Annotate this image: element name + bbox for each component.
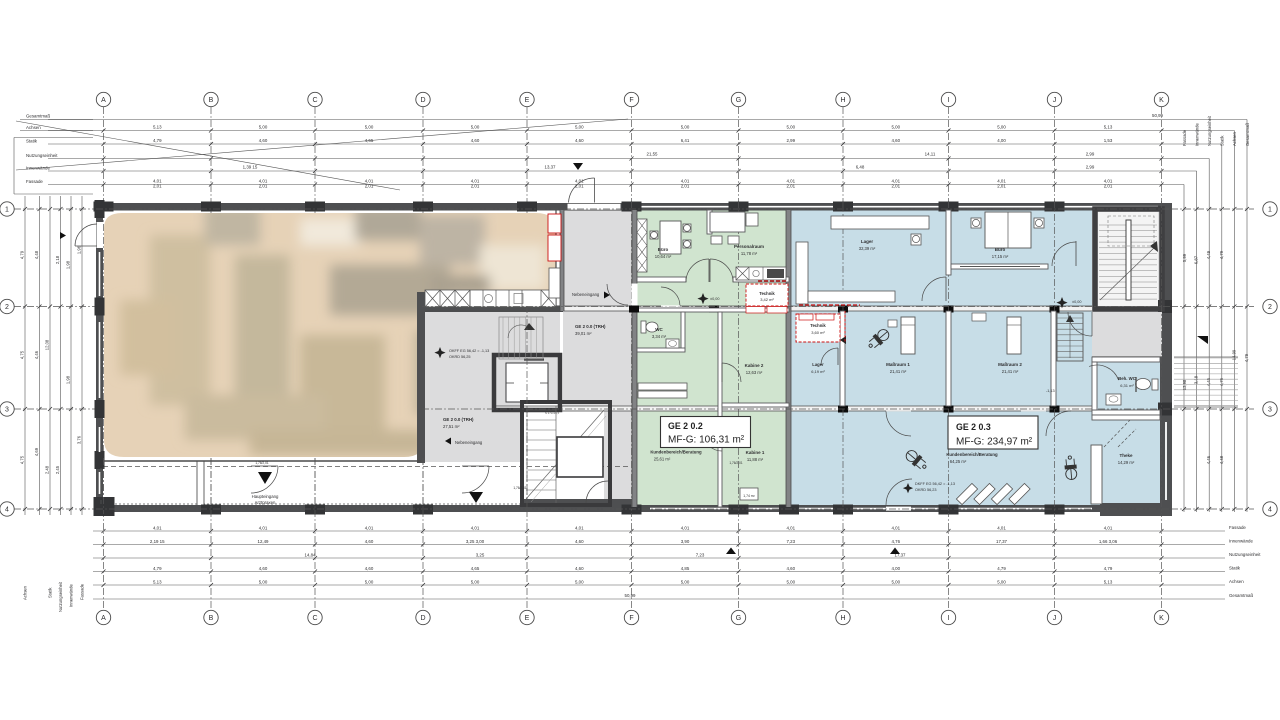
svg-text:2,01: 2,01 [575,184,584,189]
svg-text:4,79: 4,79 [1104,566,1113,571]
svg-text:5,00: 5,00 [997,580,1006,585]
svg-text:Büro: Büro [658,247,669,252]
svg-text:13,37: 13,37 [545,165,557,170]
svg-text:4,48: 4,48 [1219,455,1224,464]
svg-text:4,75: 4,75 [20,350,25,359]
svg-text:4,60: 4,60 [259,138,268,143]
svg-text:1: 1 [5,206,9,213]
svg-text:21,41 m²: 21,41 m² [890,369,907,374]
svg-text:4,85: 4,85 [681,566,690,571]
svg-text:4,75: 4,75 [20,455,25,464]
svg-text:6,41: 6,41 [681,138,690,143]
svg-text:6,48: 6,48 [856,165,865,170]
svg-text:7,23: 7,23 [696,553,705,558]
svg-text:5,00: 5,00 [786,580,795,585]
svg-text:A: A [101,97,106,104]
svg-text:4,79: 4,79 [20,250,25,259]
svg-text:E: E [525,615,530,622]
svg-text:Lager: Lager [861,239,874,244]
svg-text:4,79: 4,79 [1219,250,1224,259]
svg-text:3,34 m²: 3,34 m² [652,334,667,339]
svg-text:J: J [1053,615,1057,622]
svg-text:MF-G: 106,31 m²: MF-G: 106,31 m² [668,435,745,446]
svg-text:2,01: 2,01 [1104,184,1113,189]
svg-text:H: H [840,97,845,104]
svg-text:2,99: 2,99 [1086,165,1095,170]
svg-text:4,01: 4,01 [365,526,374,531]
svg-text:6,31 m²: 6,31 m² [1120,383,1134,388]
svg-text:4,60: 4,60 [259,566,268,571]
svg-text:Nebeneingang: Nebeneingang [572,292,600,297]
svg-text:11,88 m²: 11,88 m² [747,457,764,462]
svg-text:4,60: 4,60 [575,138,584,143]
svg-text:F: F [629,615,633,622]
svg-text:2,01: 2,01 [259,184,268,189]
svg-text:4,49: 4,49 [1206,250,1211,259]
svg-text:4,60: 4,60 [786,566,795,571]
svg-text:I: I [948,615,950,622]
svg-text:4,65: 4,65 [365,138,374,143]
svg-text:4,46: 4,46 [1206,455,1211,464]
svg-text:1,96: 1,96 [77,245,82,254]
svg-text:2,18: 2,18 [55,255,60,264]
svg-text:B: B [209,97,214,104]
svg-text:Maßraum 1: Maßraum 1 [886,362,910,367]
svg-text:A: A [101,615,106,622]
svg-text:Statik: Statik [26,139,38,144]
svg-text:1: 1 [1268,206,1272,213]
svg-text:Technik: Technik [759,291,775,296]
svg-text:4,69: 4,69 [34,447,39,456]
svg-text:D: D [420,97,425,104]
svg-text:3,60 m²: 3,60 m² [811,330,825,335]
svg-text:21,41 m²: 21,41 m² [1002,369,1019,374]
svg-text:4,01: 4,01 [681,526,690,531]
svg-text:4,60: 4,60 [575,566,584,571]
svg-text:2,99: 2,99 [786,138,795,143]
svg-text:2,48: 2,48 [45,465,50,474]
svg-text:H: H [840,615,845,622]
svg-text:MF-G: 234,97 m²: MF-G: 234,97 m² [956,437,1033,448]
svg-text:2,01: 2,01 [997,184,1006,189]
svg-text:C: C [312,97,317,104]
svg-text:3,76: 3,76 [77,435,82,444]
svg-text:11,78 m²: 11,78 m² [741,251,758,256]
svg-text:G: G [736,97,741,104]
svg-text:Achsen: Achsen [23,585,28,600]
svg-text:WC: WC [655,327,663,332]
svg-text:Achsen: Achsen [1232,131,1237,146]
svg-text:Fassade: Fassade [26,179,43,184]
svg-text:F: F [629,97,633,104]
svg-text:Innenwände: Innenwände [26,166,50,171]
svg-text:GE 2 0.0 (TRH): GE 2 0.0 (TRH) [575,324,606,329]
svg-text:2,01: 2,01 [471,184,480,189]
svg-text:1,74 m²: 1,74 m² [743,494,755,498]
svg-text:Technik: Technik [810,323,826,328]
svg-text:Kundenbereich/Beratung: Kundenbereich/Beratung [946,452,998,457]
svg-text:17,15 m²: 17,15 m² [992,254,1009,259]
svg-text:12,49: 12,49 [258,539,270,544]
svg-text:Nutzungseinheit: Nutzungseinheit [1229,552,1261,557]
svg-text:3,90: 3,90 [681,539,690,544]
svg-text:3,25: 3,25 [476,553,485,558]
svg-text:Nebeneingang: Nebeneingang [455,440,483,445]
svg-text:Haupteingang: Haupteingang [252,494,279,499]
svg-text:4,01: 4,01 [259,526,268,531]
svg-text:50,99: 50,99 [625,593,637,598]
svg-text:OKRD 56,23: OKRD 56,23 [915,488,937,492]
svg-text:14,11: 14,11 [925,152,936,157]
svg-text:17,37: 17,37 [996,539,1008,544]
svg-text:B: B [209,615,214,622]
svg-text:Statik: Statik [48,587,53,598]
svg-text:5,00: 5,00 [259,125,268,130]
svg-text:2,01: 2,01 [786,184,795,189]
svg-text:4,01: 4,01 [891,526,900,531]
svg-text:64,25 m²: 64,25 m² [950,459,967,464]
svg-text:Kundenbereich/Beratung: Kundenbereich/Beratung [650,450,702,455]
svg-text:5,99: 5,99 [1182,253,1187,262]
svg-text:Arztpraxen: Arztpraxen [255,500,276,505]
svg-text:Kabine 1: Kabine 1 [746,450,765,455]
svg-text:5,00: 5,00 [575,125,584,130]
svg-text:5,00: 5,00 [681,125,690,130]
svg-text:5,13: 5,13 [153,125,162,130]
svg-text:4,79: 4,79 [997,566,1006,571]
svg-text:4,65: 4,65 [471,566,480,571]
svg-text:1,76/2,01: 1,76/2,01 [729,461,743,465]
svg-text:Lager: Lager [812,362,824,367]
svg-text:25,61 m²: 25,61 m² [654,457,671,462]
svg-text:1,98: 1,98 [66,375,71,384]
svg-text:C: C [312,615,317,622]
svg-text:E: E [525,97,530,104]
svg-text:GE 2 0.0 (TRH): GE 2 0.0 (TRH) [443,417,474,422]
svg-text:5,13: 5,13 [1104,580,1113,585]
svg-text:Fassade: Fassade [1182,129,1187,146]
svg-text:27,51 m²: 27,51 m² [443,424,460,429]
svg-text:5,00: 5,00 [891,580,900,585]
svg-text:1,66 3,06: 1,66 3,06 [1099,539,1118,544]
svg-text:5,00: 5,00 [997,125,1006,130]
svg-text:J: J [1053,97,1057,104]
svg-text:4,76: 4,76 [891,539,900,544]
svg-text:5,00: 5,00 [259,580,268,585]
svg-text:4: 4 [1268,506,1272,513]
svg-text:Innenwände: Innenwände [69,584,74,607]
svg-text:4,79: 4,79 [1244,353,1249,362]
svg-text:12,63 m²: 12,63 m² [746,370,763,375]
svg-text:Maßraum 2: Maßraum 2 [998,362,1022,367]
svg-text:2: 2 [1268,304,1272,311]
svg-text:3: 3 [1268,406,1272,413]
svg-text:Kabine 2: Kabine 2 [745,363,764,368]
svg-text:2,01: 2,01 [365,184,374,189]
svg-text:Fassade: Fassade [1229,525,1246,530]
svg-text:5,00: 5,00 [575,580,584,585]
svg-text:4,01: 4,01 [153,526,162,531]
svg-text:Innenwände: Innenwände [1194,123,1199,146]
svg-text:39,01 m²: 39,01 m² [575,331,592,336]
svg-text:2,01: 2,01 [681,184,690,189]
svg-text:2,99: 2,99 [1086,152,1095,157]
svg-text:2,01: 2,01 [891,184,900,189]
svg-text:K: K [1159,97,1164,104]
svg-text:G: G [736,615,741,622]
svg-text:4,60: 4,60 [365,539,374,544]
svg-text:4,79: 4,79 [153,566,162,571]
svg-text:1,39 15: 1,39 15 [243,165,258,170]
svg-text:5,13: 5,13 [153,580,162,585]
svg-text:GE 2 0.3: GE 2 0.3 [956,422,991,432]
svg-text:14,29 m²: 14,29 m² [1118,460,1135,465]
svg-text:14,99: 14,99 [1231,349,1236,360]
svg-text:Büro: Büro [995,247,1006,252]
svg-text:7,23: 7,23 [786,539,795,544]
svg-text:1,76/2,01: 1,76/2,01 [513,486,527,490]
svg-text:N 37Lx16,5: N 37Lx16,5 [545,411,560,415]
svg-text:Gesamtmaß: Gesamtmaß [26,114,50,119]
svg-text:5,00: 5,00 [786,125,795,130]
svg-text:5,13: 5,13 [1104,125,1113,130]
svg-text:5,00: 5,00 [891,125,900,130]
svg-text:1,76/2,01: 1,76/2,01 [255,461,269,465]
svg-text:12,08: 12,08 [45,339,50,350]
svg-text:5,00: 5,00 [365,125,374,130]
svg-text:Nutzungseinheit: Nutzungseinheit [1207,115,1212,146]
svg-text:3,25 3,00: 3,25 3,00 [466,539,485,544]
svg-text:4,01: 4,01 [575,526,584,531]
svg-text:6,87: 6,87 [1194,255,1199,264]
svg-text:Achsen: Achsen [26,125,41,130]
svg-text:14,84: 14,84 [305,553,317,558]
svg-text:4,01: 4,01 [997,526,1006,531]
svg-text:3,18: 3,18 [1194,375,1199,384]
svg-text:Nutzungseinheit: Nutzungseinheit [26,153,58,158]
svg-text:Fassade: Fassade [80,583,85,600]
svg-text:GE 2 0.2: GE 2 0.2 [668,421,703,431]
svg-text:5,00: 5,00 [471,125,480,130]
svg-text:I: I [948,97,950,104]
svg-text:4,00: 4,00 [997,138,1006,143]
svg-text:6,19 m²: 6,19 m² [811,369,825,374]
svg-text:±0,00: ±0,00 [710,297,719,301]
svg-text:32,39 m²: 32,39 m² [859,246,876,251]
svg-text:10,64 m²: 10,64 m² [655,254,672,259]
svg-text:4,60: 4,60 [891,138,900,143]
svg-text:D: D [420,615,425,622]
svg-text:4,46: 4,46 [34,350,39,359]
svg-text:4: 4 [5,506,9,513]
svg-text:21,55: 21,55 [647,152,659,157]
svg-text:2,45: 2,45 [55,465,60,474]
svg-text:4,01: 4,01 [471,526,480,531]
svg-text:5,00: 5,00 [681,580,690,585]
svg-text:2,01: 2,01 [153,184,162,189]
svg-text:Innenwände: Innenwände [1229,539,1253,544]
svg-text:DKFF EG 56,42 = -1,13: DKFF EG 56,42 = -1,13 [915,482,955,486]
svg-text:5,00: 5,00 [365,580,374,585]
svg-text:-1,13: -1,13 [1046,389,1055,393]
svg-text:5,00: 5,00 [471,580,480,585]
svg-text:OKRD 56,25: OKRD 56,25 [449,355,471,359]
svg-text:4,00: 4,00 [891,566,900,571]
svg-text:4,79: 4,79 [153,138,162,143]
svg-text:±0,00: ±0,00 [1072,300,1081,304]
svg-text:OKFF EG 56,42 = -1,13: OKFF EG 56,42 = -1,13 [449,349,489,353]
svg-text:K: K [1159,615,1164,622]
svg-text:4,60: 4,60 [365,566,374,571]
svg-text:4,48: 4,48 [34,250,39,259]
svg-text:Theke: Theke [1119,453,1133,458]
svg-text:4,01: 4,01 [786,526,795,531]
svg-text:Statik: Statik [1220,135,1225,146]
svg-text:2,19 15: 2,19 15 [150,539,165,544]
svg-text:Beh. WC: Beh. WC [1118,376,1136,381]
svg-text:1,53: 1,53 [1104,138,1113,143]
svg-text:3: 3 [5,406,9,413]
svg-text:1,98: 1,98 [66,260,71,269]
svg-text:Gesamtmaß: Gesamtmaß [1229,593,1253,598]
svg-text:Statik: Statik [1229,566,1241,571]
svg-text:2: 2 [5,304,9,311]
svg-text:3,42 m²: 3,42 m² [760,297,774,302]
svg-text:Personalraum: Personalraum [734,244,764,249]
svg-text:Gesamtmaß: Gesamtmaß [1245,123,1250,146]
svg-text:4,60: 4,60 [471,138,480,143]
svg-text:Achsen: Achsen [1229,579,1244,584]
svg-text:Nutzungseinheit: Nutzungseinheit [58,581,63,612]
svg-text:4,01: 4,01 [1104,526,1113,531]
svg-text:4,60: 4,60 [575,539,584,544]
